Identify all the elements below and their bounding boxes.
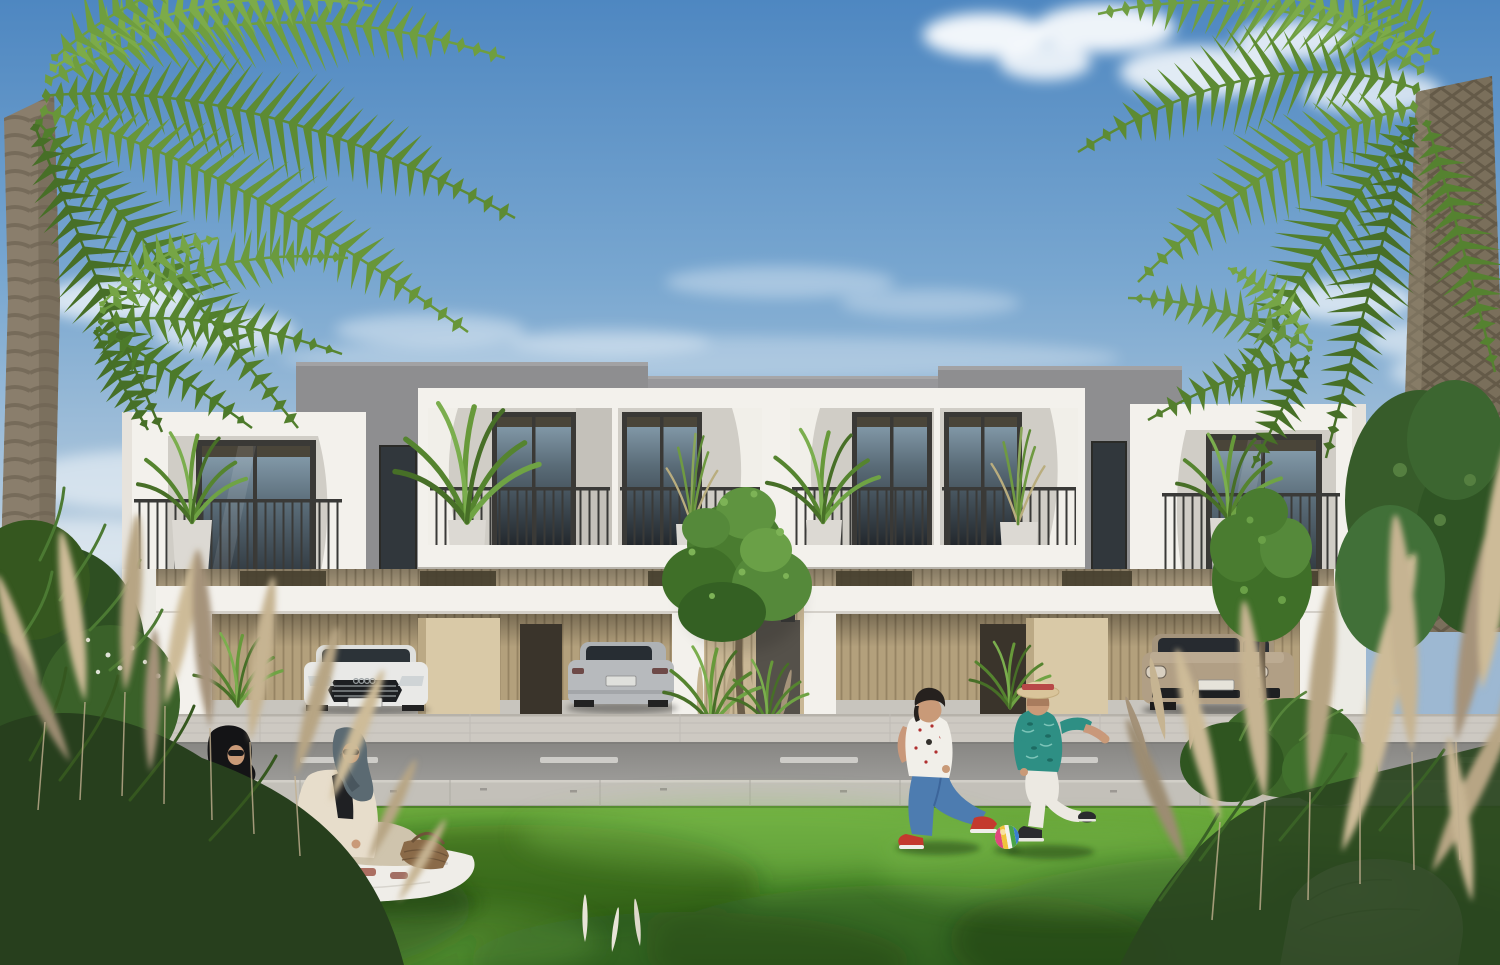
- architectural-render: [0, 0, 1500, 965]
- license-plate: [606, 676, 636, 686]
- sunglasses: [228, 750, 244, 756]
- license-plate: [1198, 680, 1234, 690]
- car-silver-sedan: [566, 642, 678, 714]
